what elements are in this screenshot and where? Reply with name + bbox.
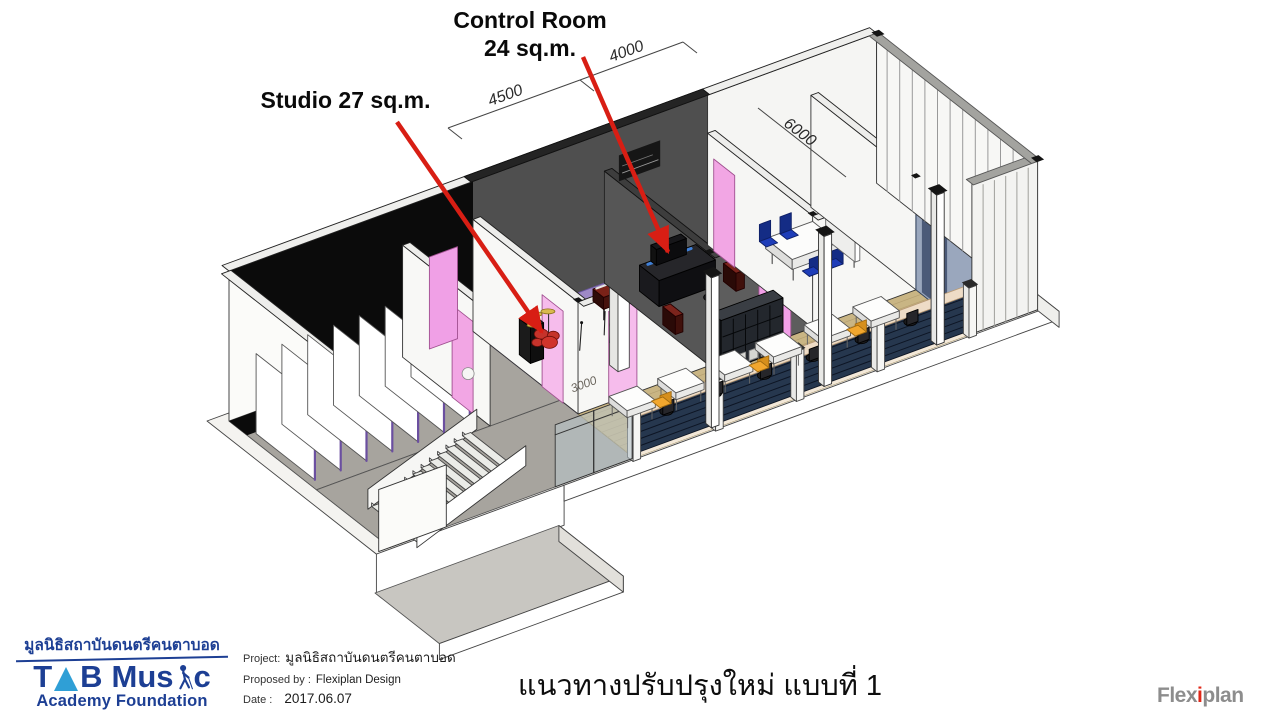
floorplan-3d-render: 4500 4000 6000 3000: [0, 0, 1280, 720]
project-info-block: Project:มูลนิธิสถาบันดนตรีคนตาบอด Propos…: [243, 646, 456, 710]
dimension-label-4500: 4500: [486, 82, 525, 110]
logo-letter-b: B: [80, 661, 102, 692]
blind-person-with-cane-icon: [175, 663, 193, 692]
studio-label: Studio 27 sq.m.: [248, 86, 443, 114]
proposed-by-value: Flexiplan Design: [316, 674, 401, 686]
logo-letters-mus: Mus: [112, 661, 174, 692]
date-label: Date :: [243, 694, 272, 706]
control-room-label-line1: Control Room: [430, 6, 630, 34]
logo-thai-name: มูลนิธิสถาบันดนตรีคนตาบอด: [14, 632, 230, 657]
slide-title: แนวทางปรับปรุงใหม่ แบบที่ 1: [500, 662, 900, 708]
control-room-label-line2: 24 sq.m.: [430, 34, 630, 62]
presentation-slide: 4500 4000 6000 3000 Control Room 24 sq.m…: [0, 0, 1280, 720]
logo-wordmark: TBMusc: [14, 661, 230, 692]
date-value: 2017.06.07: [284, 691, 352, 706]
flexiplan-logo: Flexiplan: [1157, 684, 1244, 708]
tab-music-foundation-logo: มูลนิธิสถาบันดนตรีคนตาบอด TBMusc Academy…: [14, 632, 230, 711]
flexiplan-plan: plan: [1202, 684, 1243, 707]
project-label: Project:: [243, 653, 280, 665]
flexiplan-flex: Flex: [1157, 684, 1197, 707]
logo-letter-t: T: [33, 661, 52, 692]
project-value: มูลนิธิสถาบันดนตรีคนตาบอด: [285, 650, 456, 665]
control-room-label: Control Room 24 sq.m.: [430, 6, 630, 62]
logo-triangle-a-icon: [54, 667, 78, 691]
logo-subtitle: Academy Foundation: [14, 692, 230, 711]
logo-letter-c: c: [194, 661, 211, 692]
proposed-by-label: Proposed by :: [243, 674, 311, 686]
